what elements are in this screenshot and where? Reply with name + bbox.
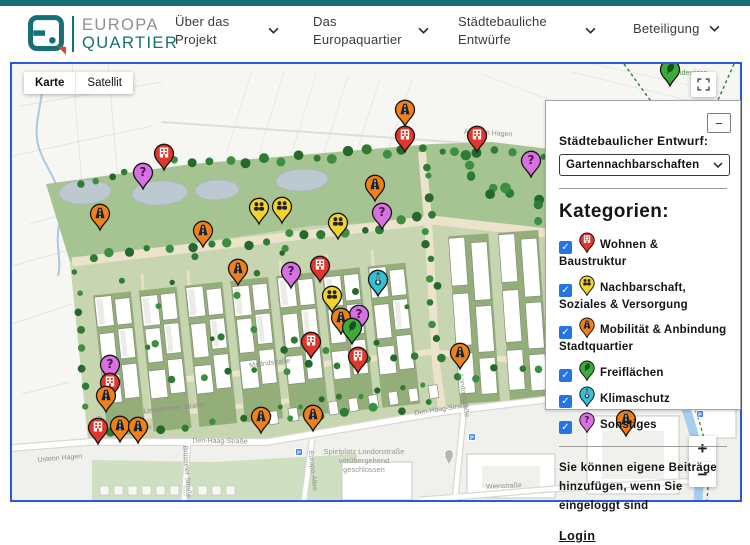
parking-icon: P	[296, 449, 303, 457]
category-checkbox-wohnen[interactable]: ✓	[559, 241, 572, 254]
category-pin-icon-freiflaechen	[579, 360, 595, 381]
category-label: Sonstiges	[600, 419, 657, 431]
chevron-down-icon	[268, 27, 279, 34]
nav-item-label: Städtebauliche Entwürfe	[458, 13, 576, 48]
category-pin-icon-klimaschutz	[579, 386, 595, 407]
nav-item-label: Beteiligung	[633, 20, 700, 38]
europaquartier-page: { "header": { "brand_top": "EUROPA", "br…	[0, 0, 750, 500]
map-type-control: Karte Satellit	[24, 72, 133, 94]
svg-text:Den-Haag-Straße: Den-Haag-Straße	[192, 438, 247, 446]
category-row-mobilitaet: ✓Mobilität & Anbindung Stadtquartier	[559, 317, 727, 356]
category-pin-icon-wohnen	[579, 232, 595, 253]
login-hint-text: Sie können eigene Beiträge hinzufügen, w…	[559, 459, 727, 516]
nav-item-label: Über das Projekt	[175, 13, 259, 48]
nav-item-label: Das Europaquartier	[313, 13, 409, 48]
category-checkbox-klimaschutz[interactable]: ✓	[559, 395, 572, 408]
chevron-down-icon	[418, 27, 429, 34]
zoom-in-button[interactable]: +	[689, 436, 716, 461]
svg-text:vorübergehend: vorübergehend	[339, 456, 389, 465]
svg-text:?: ?	[584, 416, 589, 426]
chevron-down-icon	[709, 25, 720, 32]
logo[interactable]: EUROPA QUARTIER	[26, 13, 178, 55]
category-label: Wohnen & Baustruktur	[559, 239, 658, 268]
brand-bottom: QUARTIER	[82, 34, 178, 52]
svg-text:?: ?	[379, 205, 386, 219]
svg-text:?: ?	[528, 153, 535, 167]
nav-item-1[interactable]: Das Europaquartier	[313, 13, 429, 48]
login-link[interactable]: Login	[559, 529, 596, 543]
svg-text:?: ?	[140, 165, 147, 179]
brand-text: EUROPA QUARTIER	[82, 16, 178, 53]
entwurf-select-value: Gartennachbarschaften	[566, 159, 699, 171]
category-label: Klimaschutz	[600, 393, 670, 405]
category-checkbox-mobilitaet[interactable]: ✓	[559, 326, 572, 339]
entwurf-select[interactable]: Gartennachbarschaften	[559, 154, 730, 176]
logo-triangle	[58, 47, 66, 55]
logo-icon	[26, 13, 66, 55]
svg-text:Spielplatz Londonstraße: Spielplatz Londonstraße	[324, 447, 405, 456]
header: EUROPA QUARTIER Über das ProjektDas Euro…	[0, 6, 750, 60]
filter-panel: − Städtebaulicher Entwurf: Gartennachbar…	[545, 100, 741, 410]
svg-text:geschlossen: geschlossen	[343, 465, 385, 474]
map-type-satellit[interactable]: Satellit	[76, 72, 133, 94]
nav-item-2[interactable]: Städtebauliche Entwürfe	[458, 13, 596, 48]
chevron-down-icon	[713, 162, 723, 168]
category-row-freiflaechen: ✓Freiflächen	[559, 360, 727, 382]
svg-text:?: ?	[107, 357, 114, 371]
category-row-sonstiges: ✓?Sonstiges	[559, 412, 727, 434]
panel-divider	[559, 446, 727, 447]
parking-icon: P	[469, 434, 476, 442]
logo-divider	[72, 16, 74, 52]
brand-top: EUROPA	[82, 16, 178, 34]
entwurf-label: Städtebaulicher Entwurf:	[559, 134, 727, 148]
svg-text:P: P	[470, 435, 474, 441]
nav-item-0[interactable]: Über das Projekt	[175, 13, 279, 48]
category-list: ✓Wohnen & Baustruktur✓Nachbarschaft, Soz…	[559, 232, 727, 434]
nav-item-3[interactable]: Beteiligung	[633, 20, 720, 38]
category-checkbox-sonstiges[interactable]: ✓	[559, 421, 572, 434]
map-type-karte[interactable]: Karte	[24, 72, 75, 94]
kategorien-title: Kategorien:	[559, 201, 727, 223]
category-pin-icon-sonstiges: ?	[579, 412, 595, 433]
fullscreen-icon	[697, 78, 710, 91]
category-checkbox-freiflaechen[interactable]: ✓	[559, 369, 572, 382]
category-checkbox-nachbarschaft[interactable]: ✓	[559, 284, 572, 297]
chevron-down-icon	[585, 27, 596, 34]
category-pin-icon-mobilitaet	[579, 317, 595, 338]
category-row-klimaschutz: ✓Klimaschutz	[559, 386, 727, 408]
category-row-nachbarschaft: ✓Nachbarschaft, Soziales & Versorgung	[559, 275, 727, 314]
panel-collapse-button[interactable]: −	[707, 113, 731, 133]
category-pin-icon-nachbarschaft	[579, 275, 595, 296]
svg-text:P: P	[297, 450, 301, 456]
svg-text:?: ?	[288, 264, 295, 278]
category-label: Freiflächen	[600, 367, 664, 379]
panel-divider	[559, 188, 727, 189]
fullscreen-button[interactable]	[691, 72, 716, 97]
category-row-wohnen: ✓Wohnen & Baustruktur	[559, 232, 727, 271]
